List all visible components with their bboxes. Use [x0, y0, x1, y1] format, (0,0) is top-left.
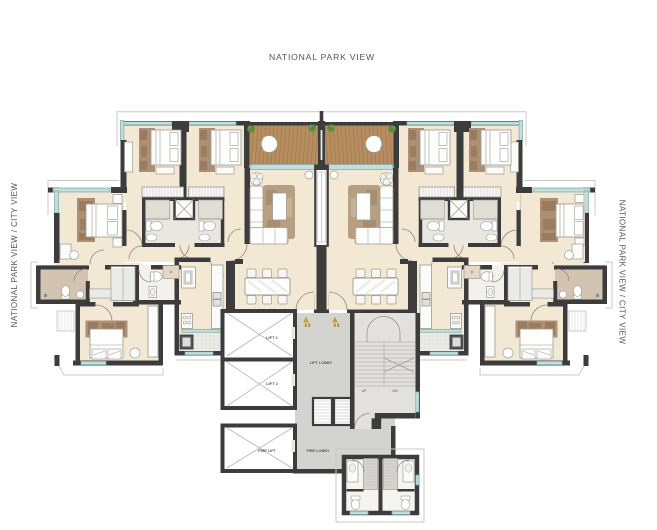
svg-text:NATIONAL PARK VIEW / CITY VIEW: NATIONAL PARK VIEW / CITY VIEW — [10, 183, 19, 328]
svg-text:NATIONAL PARK VIEW: NATIONAL PARK VIEW — [269, 52, 375, 62]
svg-text:FIRE LOBBY: FIRE LOBBY — [307, 449, 330, 453]
svg-text:NATIONAL PARK VIEW / CITY VIEW: NATIONAL PARK VIEW / CITY VIEW — [618, 200, 627, 345]
svg-text:LIFT 1: LIFT 1 — [266, 335, 279, 340]
svg-text:DN: DN — [393, 389, 398, 393]
svg-text:UP: UP — [362, 389, 367, 393]
svg-text:LIFT LOBBY: LIFT LOBBY — [310, 361, 333, 365]
svg-text:FIRE LIFT: FIRE LIFT — [258, 449, 276, 453]
svg-text:LIFT 2: LIFT 2 — [266, 381, 279, 386]
